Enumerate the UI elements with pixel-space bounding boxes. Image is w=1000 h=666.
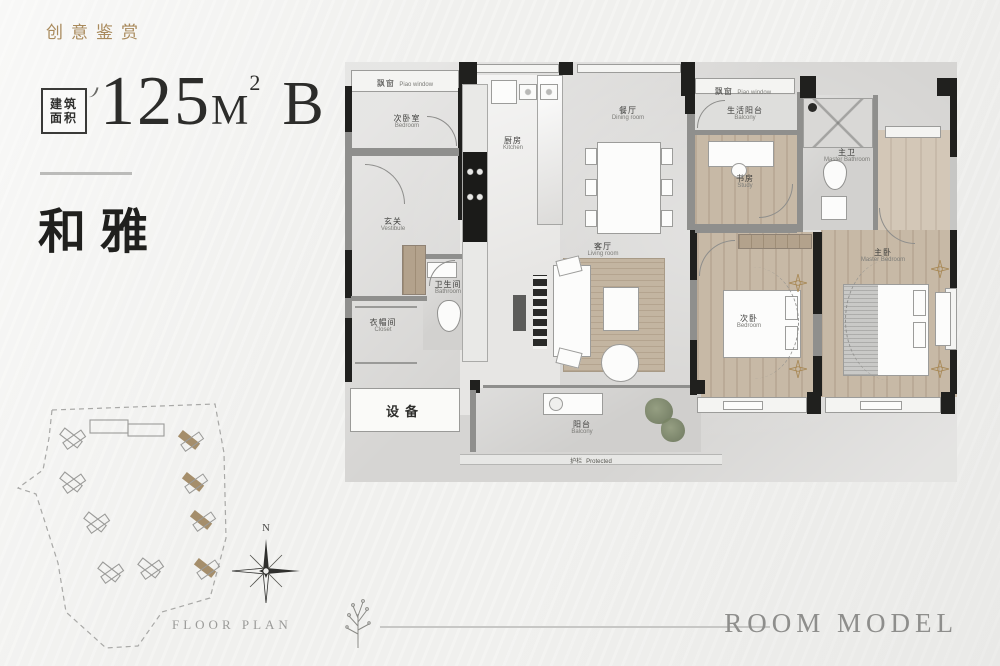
badge-tick-decoration [86,85,98,99]
room-label-balcony: 阳台Balcony [571,420,592,436]
wall [807,392,821,414]
area-badge-line2: 面积 [50,111,78,125]
wall [950,230,957,288]
plant [661,418,685,442]
tree-icon [341,596,375,650]
wall [937,78,957,96]
compass: N [228,522,304,608]
eyebrow-title: 创意鉴赏 [46,18,146,43]
tv-cabinet [513,295,526,331]
wall [351,148,459,156]
wardrobe [738,234,812,249]
label-zh: 卫生间 [435,280,462,289]
room-label-dining: 餐厅Dining room [612,106,644,122]
site-buildings-highlighted [178,430,220,579]
room-label-bedroom-tl: 次卧室Bedroom [394,114,421,130]
area-value: 125 [100,63,211,140]
label-en: Study [736,183,754,190]
label-zh: 阳台 [571,420,592,429]
page: 创意鉴赏 建筑 面积 125M2B 和雅 [0,0,1000,666]
label-en: Bedroom [394,123,421,130]
sofa [553,265,591,357]
equipment-label: 设备 [386,401,424,420]
wall [950,95,957,157]
wall [690,280,697,340]
label-en: Piao window [399,82,433,88]
wall [690,340,697,395]
wall [685,70,695,114]
door-arc [365,164,405,204]
label-zh: 护栏 [570,459,582,465]
wall [345,298,352,318]
room-label-service-balcony: 生活阳台Balcony [727,106,763,122]
wall [950,350,957,394]
wall [345,318,352,382]
window-corridor [885,126,941,138]
label-zh: 玄关 [381,217,405,226]
decor-compass-icon [789,274,807,292]
master-vanity [821,196,847,220]
dining-chair [585,210,597,227]
door-arc [427,116,457,146]
label-zh: 次卧 [737,314,761,323]
area-badge-line1: 建筑 [50,97,78,111]
dining-chair [661,179,673,196]
label-en: Bathroom [435,289,462,296]
label-en: Closet [370,327,397,334]
label-zh: 餐厅 [612,106,644,115]
decor-compass-icon [931,260,949,278]
closet-rail [355,362,417,364]
site-buildings-outline [60,420,164,583]
label-zh: 书房 [736,174,754,183]
label-zh: 主卫 [824,148,870,157]
compass-north-label: N [262,522,270,534]
railing-label: 护栏Protected [568,456,614,465]
wall [813,314,822,356]
wall [470,390,476,452]
shower-head [808,103,817,112]
wall [351,296,427,301]
wall [690,230,697,280]
label-zh: 厨房 [503,136,523,145]
plan-type: B [282,70,323,138]
kitchen-sink [519,84,537,100]
room-label-vestibule: 玄关Vestibule [381,217,405,233]
wall [687,114,695,230]
area-badge: 建筑 面积 [41,88,87,134]
room-model-caption: ROOM MODEL [724,608,958,639]
coffee-table [603,287,639,331]
cooktop [463,152,487,242]
wall [695,224,797,233]
washing-machine-door [549,397,563,411]
label-en: Master Bedroom [861,257,905,264]
room-label-closet: 衣帽间Closet [370,318,397,334]
label-en: Master Bathroom [824,157,870,164]
chaise-bench [935,292,951,346]
wall [873,95,878,230]
site-plan-caption: FLOOR PLAN [172,617,292,633]
closet-rail [355,306,417,308]
room-label-kitchen: 厨房Kitchen [503,136,523,152]
label-zh: 飘窗 [715,87,733,96]
label-en: Balcony [571,429,592,436]
equipment-platform: 设备 [350,388,460,432]
label-zh: 衣帽间 [370,318,397,327]
fridge [491,80,517,104]
label-en: Vestibule [381,226,405,233]
curtain-arc [845,260,933,380]
room-label-living: 客厅Living room [587,242,618,258]
floor-plan: 设备 [345,62,957,482]
decor-compass-icon [789,360,807,378]
wall [695,130,797,135]
dining-chair [661,210,673,227]
room-label-bath: 卫生间Bathroom [435,280,462,296]
room-label-bay-top-left: 飘窗 Piao window [377,73,433,91]
label-en: Piao window [737,90,771,96]
wall [950,157,957,230]
tv-media-wall [533,275,547,349]
area-line: 125M2B [100,62,324,142]
label-en: Balcony [727,115,763,122]
wall [345,86,352,132]
window-seat [860,401,902,410]
room-label-bay-top-right: 飘窗 Piao window [715,81,771,99]
dining-table [597,142,661,234]
compass-rose-icon [228,536,304,606]
window-top-kitchen [475,64,559,73]
page-title: 和雅 [38,192,162,262]
lounge-chair [601,344,639,382]
area-unit: M [211,88,248,134]
label-en: Bedroom [737,323,761,330]
window-top-dining [577,64,681,73]
label-en: Dining room [612,115,644,122]
wall [559,62,573,75]
label-zh: 生活阳台 [727,106,763,115]
label-en: Protected [586,459,612,465]
sliding-door-line [483,385,695,388]
label-en: Living room [587,251,618,258]
title-divider [40,172,132,175]
label-en: Kitchen [503,145,523,152]
dining-chair [585,179,597,196]
wall [813,356,822,396]
room-label-master-bath: 主卫Master Bathroom [824,148,870,164]
window-seat [723,401,763,410]
wall [800,76,816,98]
room-label-master-bedroom: 主卧Master Bedroom [861,248,905,264]
dining-chair [585,148,597,165]
shoe-cabinet [402,245,426,295]
room-label-bedroom: 次卧Bedroom [737,314,761,330]
area-superscript: 2 [249,70,260,95]
footer-divider [380,626,770,628]
wall [941,392,955,414]
label-zh: 客厅 [587,242,618,251]
decor-compass-icon [931,360,949,378]
kitchen-sink [540,84,558,100]
label-zh: 次卧室 [394,114,421,123]
room-label-study: 书房Study [736,174,754,190]
wall [813,232,822,314]
dining-chair [661,148,673,165]
label-zh: 主卧 [861,248,905,257]
label-zh: 飘窗 [377,79,395,88]
wall [345,250,352,298]
